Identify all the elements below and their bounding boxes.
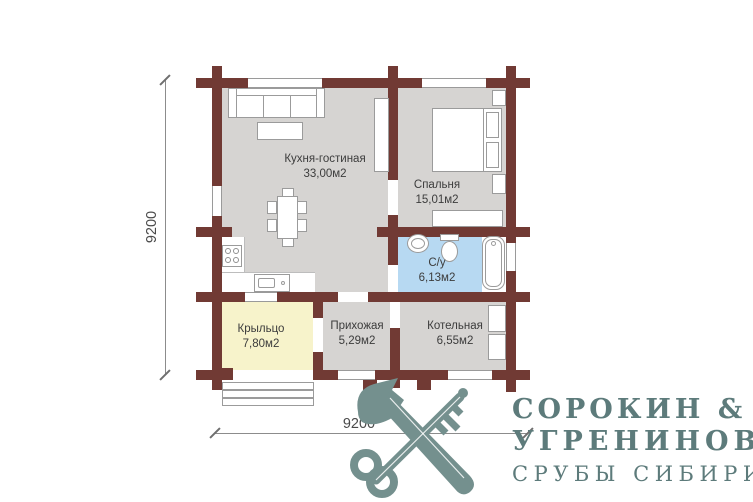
bathroom-sink-bowl bbox=[411, 238, 425, 249]
wall-mid-horizontal bbox=[368, 292, 530, 302]
pillow bbox=[486, 142, 499, 168]
sofa-seat bbox=[290, 95, 317, 118]
stove-burner bbox=[233, 248, 239, 254]
dining-chair bbox=[267, 201, 277, 214]
sofa-seat bbox=[236, 95, 264, 118]
porch-step bbox=[222, 390, 314, 398]
stove-burner bbox=[233, 257, 239, 263]
room-name: С/у bbox=[367, 256, 507, 271]
dimension-line-left bbox=[165, 80, 166, 375]
dining-chair bbox=[282, 238, 294, 247]
bathroom-sink bbox=[407, 234, 429, 253]
window-living bbox=[248, 78, 322, 88]
faucet bbox=[491, 241, 496, 246]
room-label-bedroom: Спальня 15,01м2 bbox=[367, 178, 507, 208]
wall-mid-horizontal bbox=[196, 292, 245, 302]
room-area: 15,01м2 bbox=[367, 193, 507, 208]
wall-living-bedroom bbox=[388, 215, 398, 237]
dimension-label-left: 9200 bbox=[142, 207, 162, 247]
dining-chair bbox=[267, 219, 277, 232]
window-left bbox=[212, 186, 222, 216]
wall-porch-right bbox=[313, 352, 323, 380]
window-bedroom bbox=[422, 78, 486, 88]
room-name: Кухня-гостиная bbox=[255, 152, 395, 167]
stove-burner bbox=[225, 257, 231, 263]
porch-post bbox=[220, 368, 233, 380]
dining-table bbox=[277, 196, 298, 239]
floor-plan-page: Кухня-гостиная 33,00м2 Спальня 15,01м2 С… bbox=[0, 0, 753, 502]
wall-mid-horizontal bbox=[277, 292, 338, 302]
toilet-tank bbox=[440, 234, 459, 241]
kitchen-sink-basin bbox=[258, 278, 275, 288]
coffee-table bbox=[257, 122, 303, 140]
porch-step bbox=[222, 398, 314, 406]
wall-joint bbox=[196, 227, 232, 237]
wall-porch-right bbox=[313, 292, 323, 318]
sofa-seat bbox=[263, 95, 291, 118]
room-area: 6,55м2 bbox=[385, 334, 525, 349]
logo-text-line3: СРУБЫ СИБИРИ bbox=[512, 462, 753, 486]
room-name: Спальня bbox=[367, 178, 507, 193]
nightstand bbox=[492, 90, 506, 106]
room-label-boiler: Котельная 6,55м2 bbox=[385, 319, 525, 349]
logo-text-line1: СОРОКИН & bbox=[512, 394, 746, 425]
dining-chair bbox=[297, 201, 307, 214]
faucet bbox=[281, 281, 285, 285]
logo-text-line2: УГРЕНИНОВ bbox=[512, 426, 753, 457]
pillow bbox=[486, 112, 499, 138]
stove bbox=[222, 245, 242, 267]
room-label-bathroom: С/у 6,13м2 bbox=[367, 256, 507, 286]
dining-chair bbox=[297, 219, 307, 232]
room-area: 6,13м2 bbox=[367, 271, 507, 286]
room-kitchen-living-floor bbox=[222, 88, 388, 292]
bed-divider bbox=[483, 109, 484, 171]
room-name: Котельная bbox=[385, 319, 525, 334]
stove-burner bbox=[225, 248, 231, 254]
dresser bbox=[432, 210, 503, 227]
kitchen-sink bbox=[254, 274, 290, 292]
crossed-axe-and-key-icon bbox=[346, 376, 518, 502]
window-kitchen-porch bbox=[245, 292, 277, 302]
bed bbox=[432, 108, 502, 172]
window-right bbox=[506, 243, 516, 271]
porch-step bbox=[222, 382, 314, 390]
